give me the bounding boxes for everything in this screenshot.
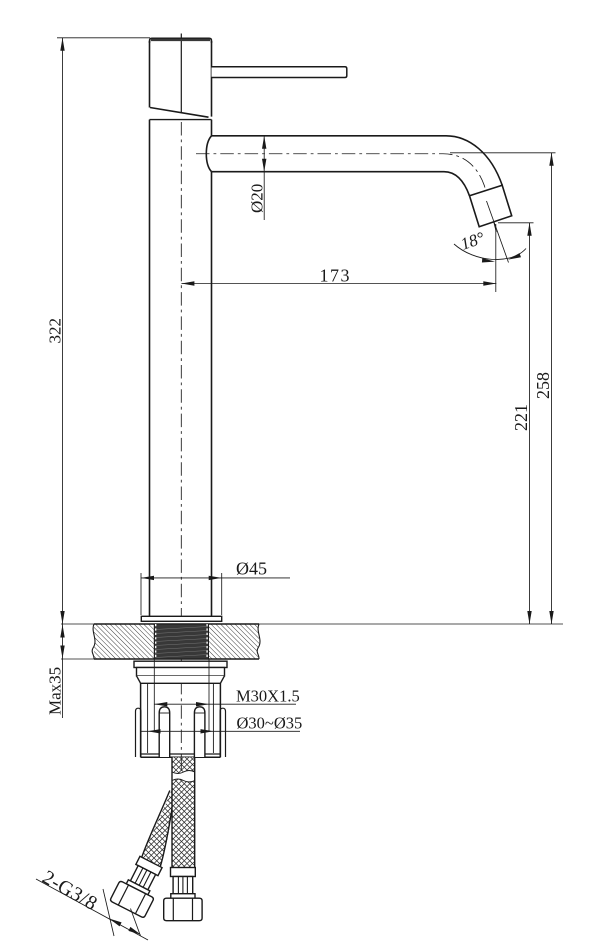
svg-text:Ø45: Ø45 [236, 559, 267, 579]
svg-text:322: 322 [46, 318, 65, 344]
svg-text:258: 258 [533, 372, 553, 399]
svg-text:Ø30~Ø35: Ø30~Ø35 [237, 714, 303, 733]
svg-text:173: 173 [320, 266, 352, 286]
svg-text:Ø20: Ø20 [248, 184, 267, 213]
svg-text:M30X1.5: M30X1.5 [236, 687, 300, 706]
svg-text:Max35: Max35 [46, 667, 65, 715]
svg-text:221: 221 [511, 404, 531, 431]
